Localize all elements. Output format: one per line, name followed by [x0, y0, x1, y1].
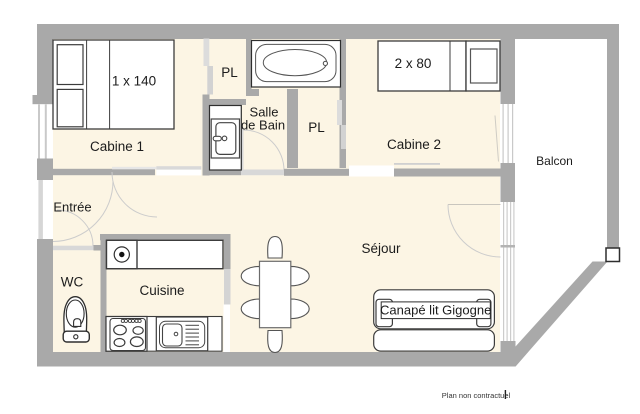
svg-text:Plan non contractuel: Plan non contractuel — [442, 391, 511, 400]
svg-text:WC: WC — [61, 275, 84, 290]
svg-text:2 x 80: 2 x 80 — [395, 56, 432, 71]
svg-text:Cuisine: Cuisine — [139, 283, 184, 298]
svg-text:PL: PL — [221, 65, 238, 80]
svg-text:Cabine 2: Cabine 2 — [387, 137, 441, 152]
svg-text:PL: PL — [308, 120, 325, 135]
svg-text:Séjour: Séjour — [361, 241, 401, 256]
svg-text:1 x 140: 1 x 140 — [112, 74, 156, 89]
svg-text:Cabine 1: Cabine 1 — [90, 139, 144, 154]
svg-text:Balcon: Balcon — [536, 154, 573, 168]
svg-text:Entrée: Entrée — [53, 200, 91, 215]
svg-text:Canapé lit Gigogne: Canapé lit Gigogne — [380, 303, 491, 318]
svg-text:de Bain: de Bain — [241, 117, 285, 132]
